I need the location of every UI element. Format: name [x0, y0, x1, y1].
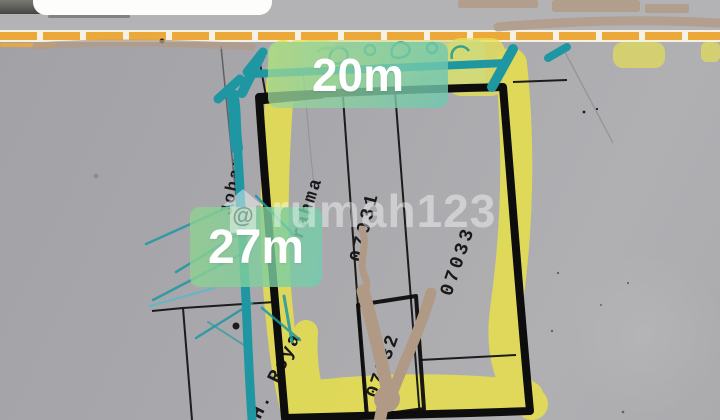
- svg-text:@: @: [232, 203, 253, 228]
- land-plot-photo: Johar rahma 07031 07033 07032 H. Roya: [0, 0, 720, 420]
- watermark: @ rumah123: [221, 187, 496, 235]
- house-at-icon: @: [221, 187, 265, 235]
- width-dimension-label: 20m: [268, 42, 448, 108]
- watermark-brand: rumah123: [271, 188, 496, 234]
- width-dimension-value: 20m: [312, 48, 404, 102]
